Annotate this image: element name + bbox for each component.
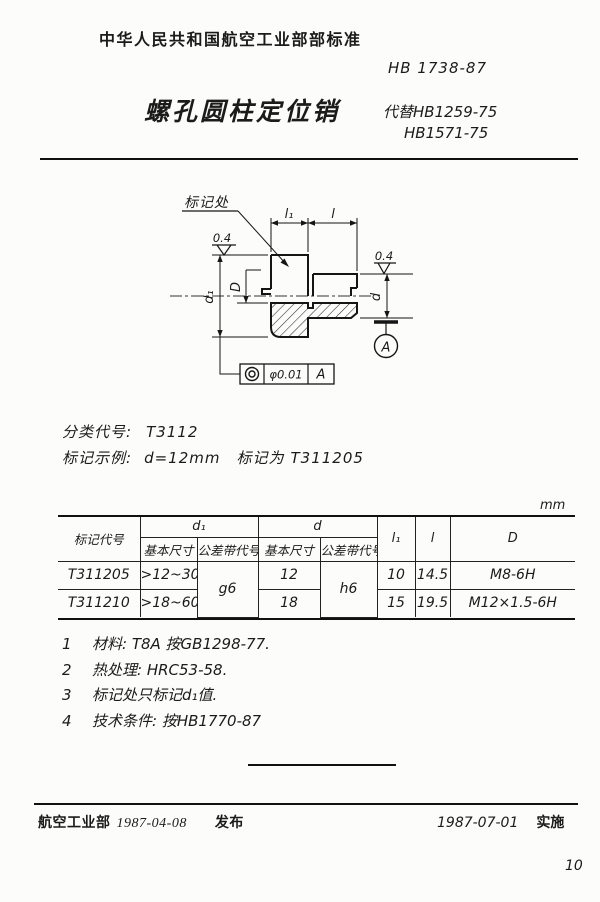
section-hatch — [271, 303, 357, 337]
impl-date: 1987-07-01 — [437, 815, 518, 831]
classification-line: 分类代号:T3112 — [62, 421, 198, 442]
col-header-D: D — [450, 517, 575, 561]
subheader-tol-d: 公差带代号 — [320, 537, 377, 561]
standard-org-title: 中华人民共和国航空工业部部标准 — [99, 26, 362, 50]
dim-d-label: d — [369, 292, 384, 301]
note-text: 材料: T8A 按GB1298-77. — [92, 635, 270, 653]
example-condition: d=12mm — [144, 449, 220, 467]
example-middle: 标记为 — [236, 449, 284, 467]
datum-symbol: A — [374, 322, 398, 358]
subheader-basic-d1: 基本尺寸 — [140, 537, 197, 561]
note-text: 标记处只标记d₁值. — [92, 686, 217, 704]
svg-text:0.4: 0.4 — [213, 231, 231, 245]
cell-D: M8-6H — [450, 561, 575, 589]
d1-dimension — [212, 255, 268, 374]
col-header-code: 标记代号 — [58, 517, 140, 561]
svg-text:0.4: 0.4 — [375, 249, 393, 263]
cell-code: T311210 — [58, 589, 140, 617]
cell-d-basic: 18 — [258, 589, 320, 617]
cell-code: T311205 — [58, 561, 140, 589]
unit-label: mm — [540, 498, 565, 513]
issue-date: 1987-04-08 — [117, 816, 187, 831]
example-label: 标记示例: — [62, 449, 132, 467]
col-header-l1: l₁ — [377, 517, 415, 561]
note-item: 3标记处只标记d₁值. — [62, 684, 270, 710]
subheader-tol-d1: 公差带代号 — [197, 537, 258, 561]
note-number: 3 — [62, 686, 92, 704]
impl-label: 实施 — [536, 816, 564, 831]
page-number: 10 — [565, 858, 583, 874]
spec-table-wrap: 标记代号 d₁ d l₁ l D 基本尺寸 公差带代号 基本尺寸 公差带代号 T… — [58, 515, 575, 620]
section-divider — [248, 764, 396, 766]
classification-label: 分类代号: — [62, 423, 132, 441]
footer-rule — [34, 803, 578, 805]
marking-label: 标记处 — [184, 195, 229, 211]
cell-d1-tol: g6 — [197, 561, 258, 617]
note-item: 2热处理: HRC53-58. — [62, 659, 270, 685]
tolerance-value: φ0.01 — [269, 368, 302, 382]
roughness-symbol-right: 0.4 — [374, 249, 396, 274]
example-code: T311205 — [290, 449, 363, 467]
D-dimension-arrow — [243, 296, 248, 303]
concentricity-icon — [246, 368, 259, 381]
technical-drawing: 标记处 l₁ l d₁ — [158, 183, 474, 401]
page-title: 螺孔圆柱定位销 — [144, 92, 340, 128]
note-number: 1 — [62, 635, 92, 653]
cell-d1-basic: >18~60 — [140, 589, 197, 617]
col-header-d1: d₁ — [140, 517, 258, 537]
footer-issue: 航空工业部1987-04-08发布 — [38, 812, 244, 832]
note-item: 4技术条件: 按HB1770-87 — [62, 710, 270, 736]
note-text: 技术条件: 按HB1770-87 — [92, 712, 261, 730]
datum-letter: A — [381, 341, 391, 356]
spec-table: 标记代号 d₁ d l₁ l D 基本尺寸 公差带代号 基本尺寸 公差带代号 T… — [58, 517, 575, 618]
note-text: 热处理: HRC53-58. — [92, 661, 227, 679]
document-page: 中华人民共和国航空工业部部标准 HB 1738-87 螺孔圆柱定位销 代替HB1… — [0, 0, 600, 902]
col-header-l: l — [415, 517, 450, 561]
dim-l1-label: l₁ — [285, 207, 294, 222]
subheader-basic-d: 基本尺寸 — [258, 537, 320, 561]
cell-l: 19.5 — [415, 589, 450, 617]
note-item: 1材料: T8A 按GB1298-77. — [62, 633, 270, 659]
classification-value: T3112 — [146, 423, 198, 441]
replaces-line-1: 代替HB1259-75 — [383, 101, 497, 122]
cell-D: M12×1.5-6H — [450, 589, 575, 617]
standard-number: HB 1738-87 — [388, 59, 487, 77]
tolerance-datum: A — [316, 368, 326, 383]
note-number: 2 — [62, 661, 92, 679]
dim-d1-label: d₁ — [202, 290, 217, 303]
marking-leader: 标记处 — [182, 195, 289, 267]
note-number: 4 — [62, 712, 92, 730]
dim-D-label: D — [229, 282, 244, 292]
roughness-symbol-left: 0.4 — [212, 231, 236, 255]
footer-org: 航空工业部 — [38, 816, 111, 831]
table-row: T311205 >12~30 g6 12 h6 10 14.5 M8-6H — [58, 561, 575, 589]
dim-l-label: l — [331, 207, 335, 222]
cell-l1: 15 — [377, 589, 415, 617]
marking-example-line: 标记示例:d=12mm标记为T311205 — [62, 447, 364, 468]
notes-list: 1材料: T8A 按GB1298-77. 2热处理: HRC53-58. 3标记… — [62, 633, 270, 735]
issue-label: 发布 — [215, 816, 244, 831]
replaces-line-2: HB1571-75 — [404, 124, 488, 142]
cell-l: 14.5 — [415, 561, 450, 589]
cell-d-tol: h6 — [320, 561, 377, 617]
cell-l1: 10 — [377, 561, 415, 589]
header-rule — [40, 158, 578, 160]
feature-control-frame: φ0.01 A — [240, 364, 334, 384]
footer-implementation: 1987-07-01实施 — [437, 812, 564, 832]
table-row: T311210 >18~60 18 15 19.5 M12×1.5-6H — [58, 589, 575, 617]
part-outline-upper — [262, 255, 357, 296]
col-header-d: d — [258, 517, 377, 537]
cell-d-basic: 12 — [258, 561, 320, 589]
cell-d1-basic: >12~30 — [140, 561, 197, 589]
